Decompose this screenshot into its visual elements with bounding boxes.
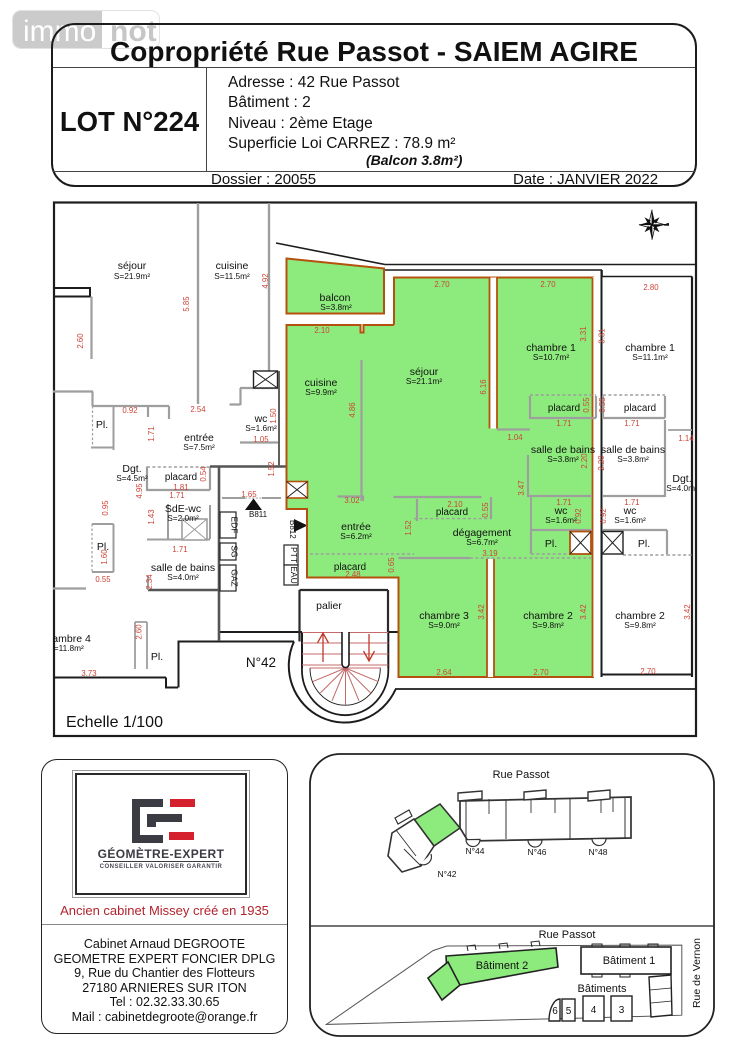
- svg-text:Bâtiment 2: Bâtiment 2: [476, 960, 529, 972]
- svg-text:Bâtiments: Bâtiments: [578, 983, 627, 995]
- svg-text:Bâtiment 1: Bâtiment 1: [603, 955, 656, 967]
- svg-text:5: 5: [566, 1006, 572, 1017]
- svg-text:Rue Passot: Rue Passot: [539, 929, 596, 941]
- svg-text:N°46: N°46: [528, 847, 547, 857]
- svg-text:Rue Passot: Rue Passot: [493, 769, 550, 781]
- svg-text:Rue de Vernon: Rue de Vernon: [691, 938, 703, 1008]
- svg-text:3: 3: [619, 1005, 625, 1016]
- svg-text:6: 6: [552, 1006, 558, 1017]
- svg-text:N°48: N°48: [589, 847, 608, 857]
- svg-text:N°42: N°42: [438, 869, 457, 879]
- svg-text:N°44: N°44: [466, 846, 485, 856]
- svg-text:4: 4: [591, 1005, 597, 1016]
